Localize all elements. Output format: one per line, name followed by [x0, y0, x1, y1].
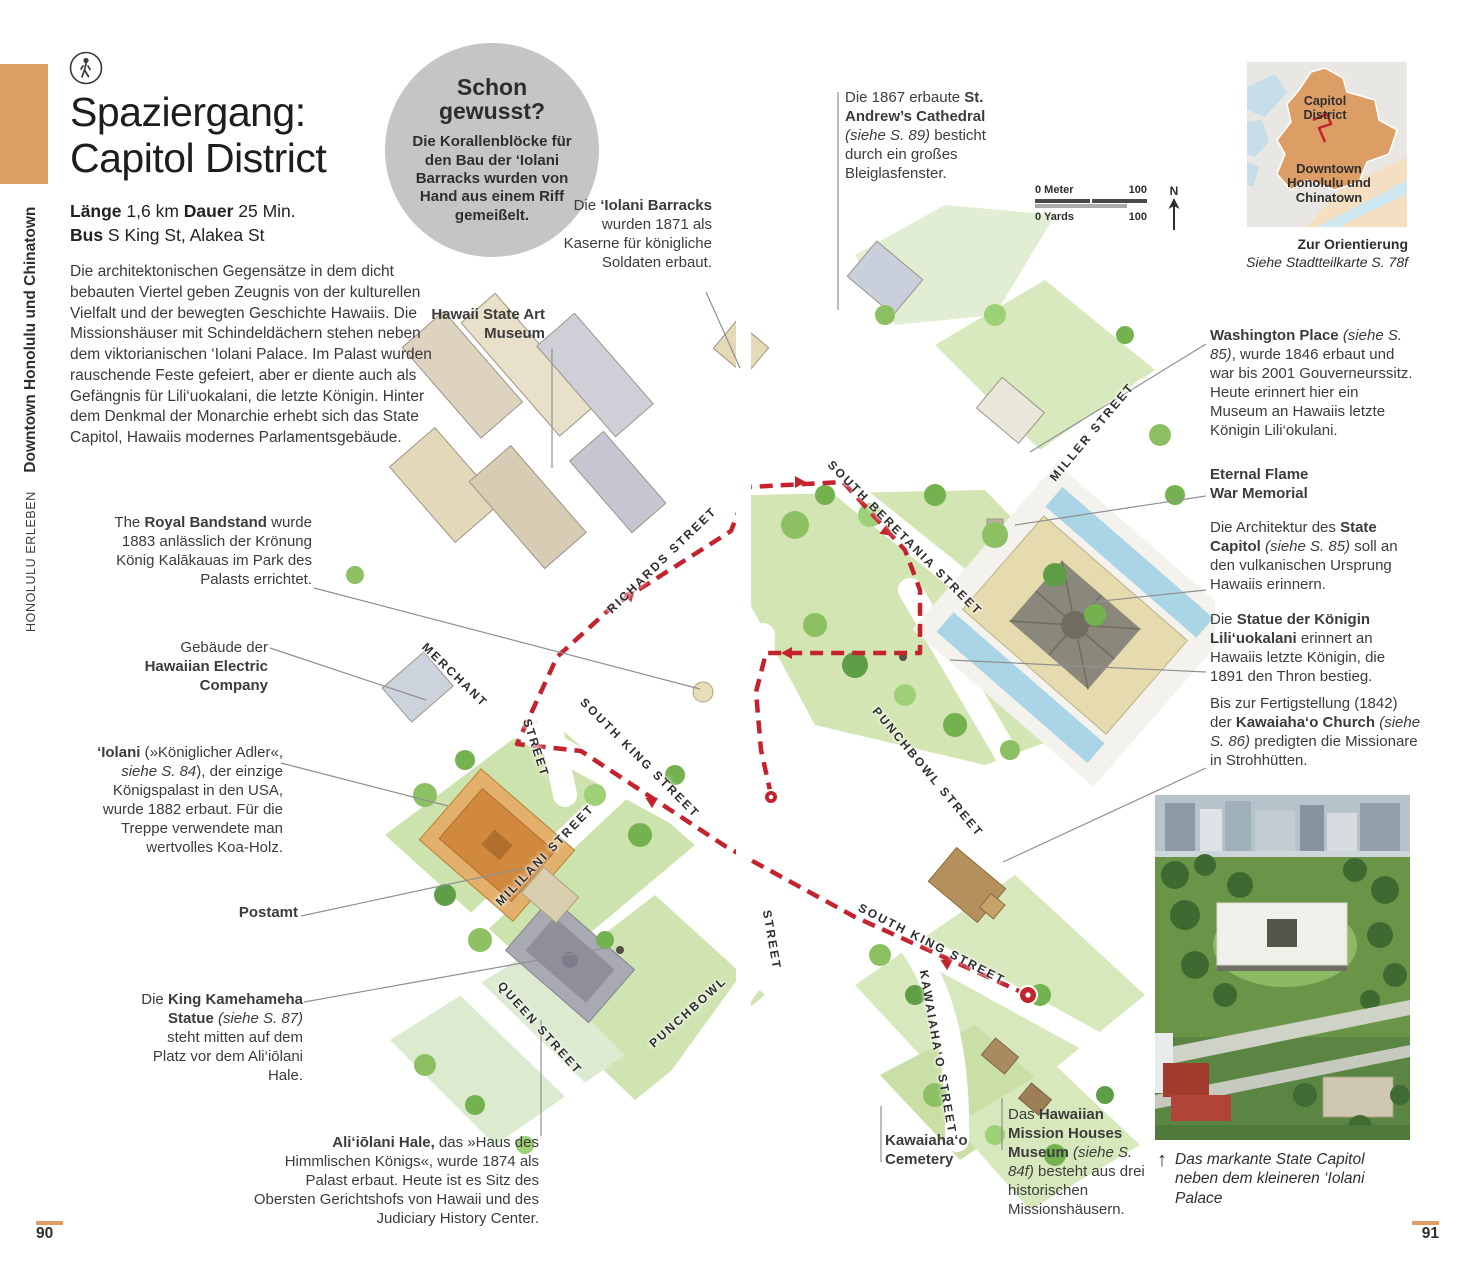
royal-bandstand-building — [693, 682, 713, 702]
annotation-mission-houses-museum: Das Hawaiian Mission Houses Museum (sieh… — [1008, 1105, 1158, 1219]
scale-bar: 0 Meter 100 0 Yards 100 — [1035, 184, 1147, 223]
page-number-left: 90 — [36, 1225, 63, 1243]
annotation-iolani-barracks: Die ‘Iolani Barracks wurden 1871 als Kas… — [547, 196, 712, 272]
north-indicator: N — [1166, 184, 1182, 232]
page-number-right-block: 91 — [1412, 1221, 1439, 1243]
tour-meta: Länge 1,6 km Dauer 25 Min. Bus S King St… — [70, 200, 296, 247]
page-number-left-block: 90 — [36, 1221, 63, 1243]
annotation-state-capitol: Die Architektur des State Capitol (siehe… — [1210, 518, 1420, 594]
annotation-hawaii-state-art-museum: Hawaii State Art Museum — [425, 305, 545, 343]
chapter-color-tab — [0, 64, 48, 184]
photo-caption-text: Das markante State Capitol neben dem kle… — [1175, 1150, 1387, 1208]
scale-bar-meters — [1035, 199, 1147, 203]
annotation-washington-place: Washington Place (siehe S. 85), wurde 18… — [1210, 326, 1415, 440]
annotation-royal-bandstand: The Royal Bandstand wurde 1883 anlässlic… — [82, 513, 312, 589]
route-start-pin — [764, 790, 778, 804]
sidebar-vertical-text: HONOLULU ERLEBEN Downtown Honolulu und C… — [22, 207, 40, 632]
annotation-hawaiian-electric: Gebäude derHawaiian Electric Company — [118, 638, 268, 695]
intro-paragraph: Die architektonischen Gegensätze in dem … — [70, 262, 444, 449]
photo-caption: ↑ Das markante State Capitol neben dem k… — [1157, 1150, 1387, 1208]
annotation-st-andrews-cathedral: Die 1867 erbaute St. Andrew’s Cathedral … — [845, 88, 1010, 183]
annotation-kawaiahao-church: Bis zur Fertigstellung (1842) der Kawaia… — [1210, 694, 1422, 770]
locator-area-label: Downtown Honolulu und Chinatown — [1269, 162, 1389, 205]
annotation-iolani-palace: ‘Iolani (»Königlicher Adler«, siehe S. 8… — [73, 743, 283, 857]
kamehameha-statue-marker — [616, 946, 624, 954]
page-title: Spaziergang: Capitol District — [70, 90, 326, 182]
scale-bar-yards — [1035, 204, 1127, 208]
orientation-reference: Siehe Stadtteilkarte S. 78f — [1240, 254, 1408, 272]
north-arrow-icon — [1166, 198, 1182, 232]
scale-meters-end: 100 — [1129, 184, 1147, 196]
page-title-line1: Spaziergang: — [70, 90, 326, 136]
page-gutter — [736, 195, 751, 1215]
north-label: N — [1166, 184, 1182, 198]
locator-map: Capitol District Downtown Honolulu und C… — [1247, 62, 1407, 227]
guidebook-spread: { "sidebar": { "section": "HONOLULU ERLE… — [0, 0, 1475, 1280]
caption-up-arrow-icon: ↑ — [1157, 1150, 1167, 1208]
page-title-line2: Capitol District — [70, 136, 326, 182]
state-capitol-photo — [1155, 795, 1410, 1140]
annotation-eternal-flame: Eternal FlameWar Memorial — [1210, 465, 1415, 503]
did-you-know-title: Schon gewusst? — [403, 75, 581, 123]
orientation-note: Zur Orientierung Siehe Stadtteilkarte S.… — [1240, 236, 1408, 271]
annotation-liliuokalani-statue: Die Statue der Königin Lili‘uokalani eri… — [1210, 610, 1422, 686]
sidebar-chapter-label: Downtown Honolulu und Chinatown — [22, 207, 39, 473]
annotation-kawaiahao-cemetery: Kawaiaha‘o Cemetery — [885, 1131, 995, 1169]
sidebar-section-label: HONOLULU ERLEBEN — [24, 491, 38, 632]
walking-tour-icon — [68, 50, 104, 86]
tour-meta-length-duration: Länge 1,6 km Dauer 25 Min. — [70, 200, 296, 224]
route-end-pin — [1019, 986, 1037, 1004]
annotation-kamehameha-statue: Die King Kamehameha Statue (siehe S. 87)… — [138, 990, 303, 1085]
scale-yards-start: 0 Yards — [1035, 211, 1074, 223]
annotation-post-office: Postamt — [198, 903, 298, 922]
annotation-aliiolani-hale: Ali‘iōlani Hale, das »Haus des Himmlisch… — [247, 1133, 539, 1228]
page-number-right: 91 — [1412, 1225, 1439, 1243]
locator-district-label: Capitol District — [1285, 95, 1365, 123]
orientation-title: Zur Orientierung — [1240, 236, 1408, 254]
tour-meta-bus: Bus S King St, Alakea St — [70, 224, 296, 248]
scale-meters-start: 0 Meter — [1035, 184, 1074, 196]
scale-yards-end: 100 — [1129, 211, 1147, 223]
